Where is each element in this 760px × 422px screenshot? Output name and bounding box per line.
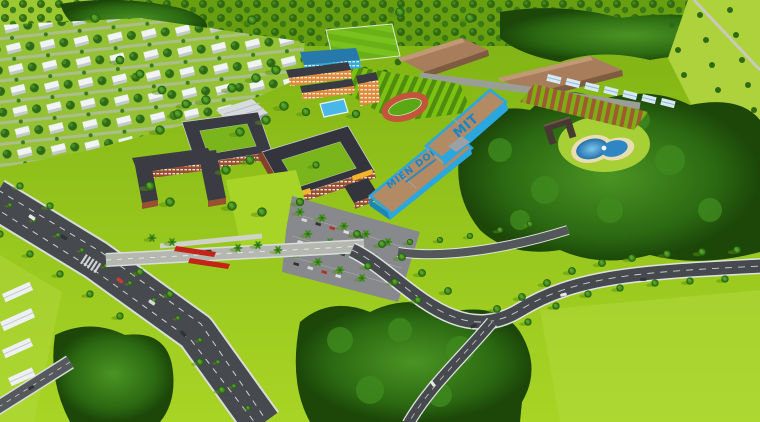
lawn-highlight-bottom-right <box>540 290 760 422</box>
forest-bottom-left <box>53 327 173 422</box>
render-svg: MIEN DONG MIT <box>0 0 760 422</box>
aerial-campus-render: MIEN DONG MIT <box>0 0 760 422</box>
